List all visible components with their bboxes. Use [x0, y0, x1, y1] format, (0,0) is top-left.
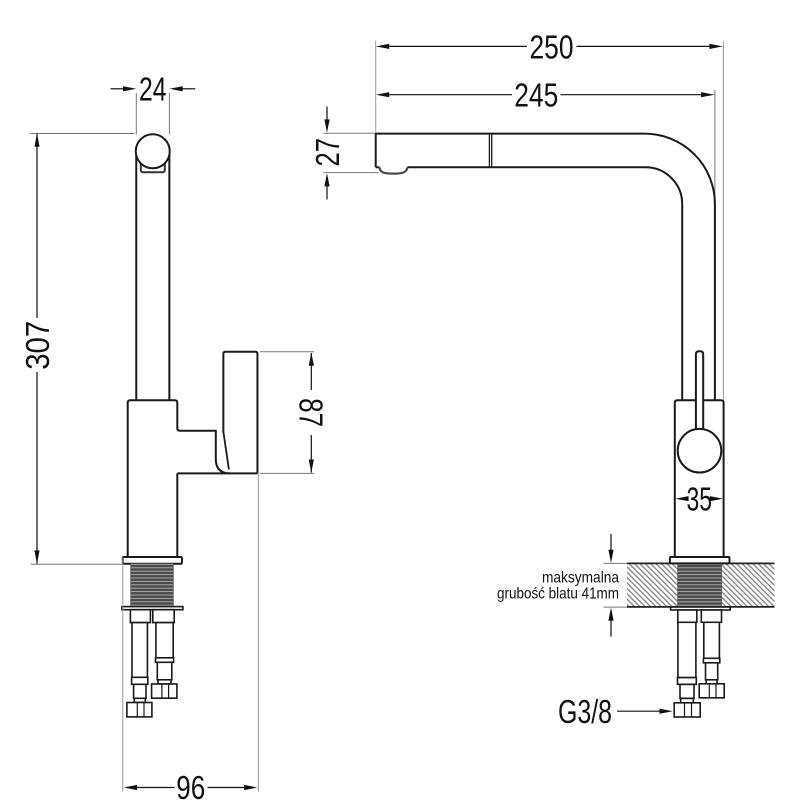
svg-text:35: 35 — [687, 481, 713, 518]
svg-text:307: 307 — [19, 321, 56, 370]
svg-text:96: 96 — [176, 769, 205, 800]
svg-text:87: 87 — [292, 398, 329, 427]
svg-text:245: 245 — [514, 77, 558, 114]
svg-text:grubość blatu 41mm: grubość blatu 41mm — [497, 586, 619, 603]
svg-text:250: 250 — [530, 28, 574, 65]
svg-text:maksymalna: maksymalna — [542, 570, 619, 587]
svg-text:G3/8: G3/8 — [558, 693, 612, 730]
svg-text:24: 24 — [139, 71, 167, 108]
svg-text:27: 27 — [309, 138, 346, 167]
